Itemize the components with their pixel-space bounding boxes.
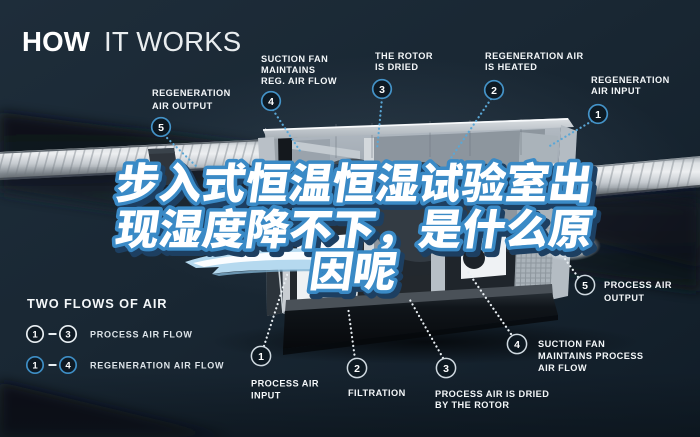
svg-text:REGENERATION: REGENERATION	[591, 75, 670, 85]
svg-text:FILTRATION: FILTRATION	[348, 388, 406, 398]
svg-text:PROCESS AIR FLOW: PROCESS AIR FLOW	[90, 330, 193, 340]
svg-text:2: 2	[491, 85, 497, 97]
svg-text:4: 4	[514, 339, 520, 351]
svg-text:3: 3	[443, 363, 449, 375]
svg-text:PROCESS AIR: PROCESS AIR	[604, 280, 672, 290]
svg-text:3: 3	[65, 330, 70, 341]
svg-text:4: 4	[268, 96, 274, 108]
svg-text:3: 3	[379, 84, 385, 96]
svg-text:BY THE ROTOR: BY THE ROTOR	[435, 400, 510, 410]
svg-text:TWO FLOWS OF AIR: TWO FLOWS OF AIR	[27, 296, 167, 311]
svg-text:1: 1	[32, 361, 38, 372]
svg-text:1: 1	[258, 351, 264, 363]
svg-text:AIR OUTPUT: AIR OUTPUT	[152, 101, 213, 111]
svg-text:1: 1	[32, 330, 38, 341]
svg-text:1: 1	[595, 109, 601, 121]
svg-text:INPUT: INPUT	[251, 391, 281, 401]
svg-text:4: 4	[65, 361, 71, 372]
svg-text:5: 5	[158, 122, 164, 134]
svg-text:AIR FLOW: AIR FLOW	[538, 363, 587, 373]
svg-text:MAINTAINS PROCESS: MAINTAINS PROCESS	[538, 351, 644, 361]
svg-text:2: 2	[354, 363, 360, 375]
svg-text:5: 5	[582, 280, 588, 292]
svg-text:REG. AIR FLOW: REG. AIR FLOW	[261, 76, 337, 86]
svg-text:SUCTION FAN: SUCTION FAN	[261, 54, 328, 64]
svg-text:PROCESS AIR IS DRIED: PROCESS AIR IS DRIED	[435, 389, 549, 399]
svg-text:SUCTION FAN: SUCTION FAN	[538, 339, 605, 349]
svg-text:MAINTAINS: MAINTAINS	[261, 65, 315, 75]
svg-text:REGENERATION AIR: REGENERATION AIR	[485, 51, 584, 61]
svg-text:REGENERATION AIR FLOW: REGENERATION AIR FLOW	[90, 361, 224, 371]
svg-text:AIR INPUT: AIR INPUT	[591, 86, 641, 96]
svg-text:IS HEATED: IS HEATED	[485, 62, 537, 72]
svg-text:OUTPUT: OUTPUT	[604, 293, 644, 303]
svg-text:THE ROTOR: THE ROTOR	[375, 51, 433, 61]
svg-text:IS DRIED: IS DRIED	[375, 62, 418, 72]
svg-text:PROCESS AIR: PROCESS AIR	[251, 379, 319, 389]
svg-text:HOWIT WORKS: HOWIT WORKS	[22, 26, 241, 57]
svg-text:REGENERATION: REGENERATION	[152, 88, 231, 98]
